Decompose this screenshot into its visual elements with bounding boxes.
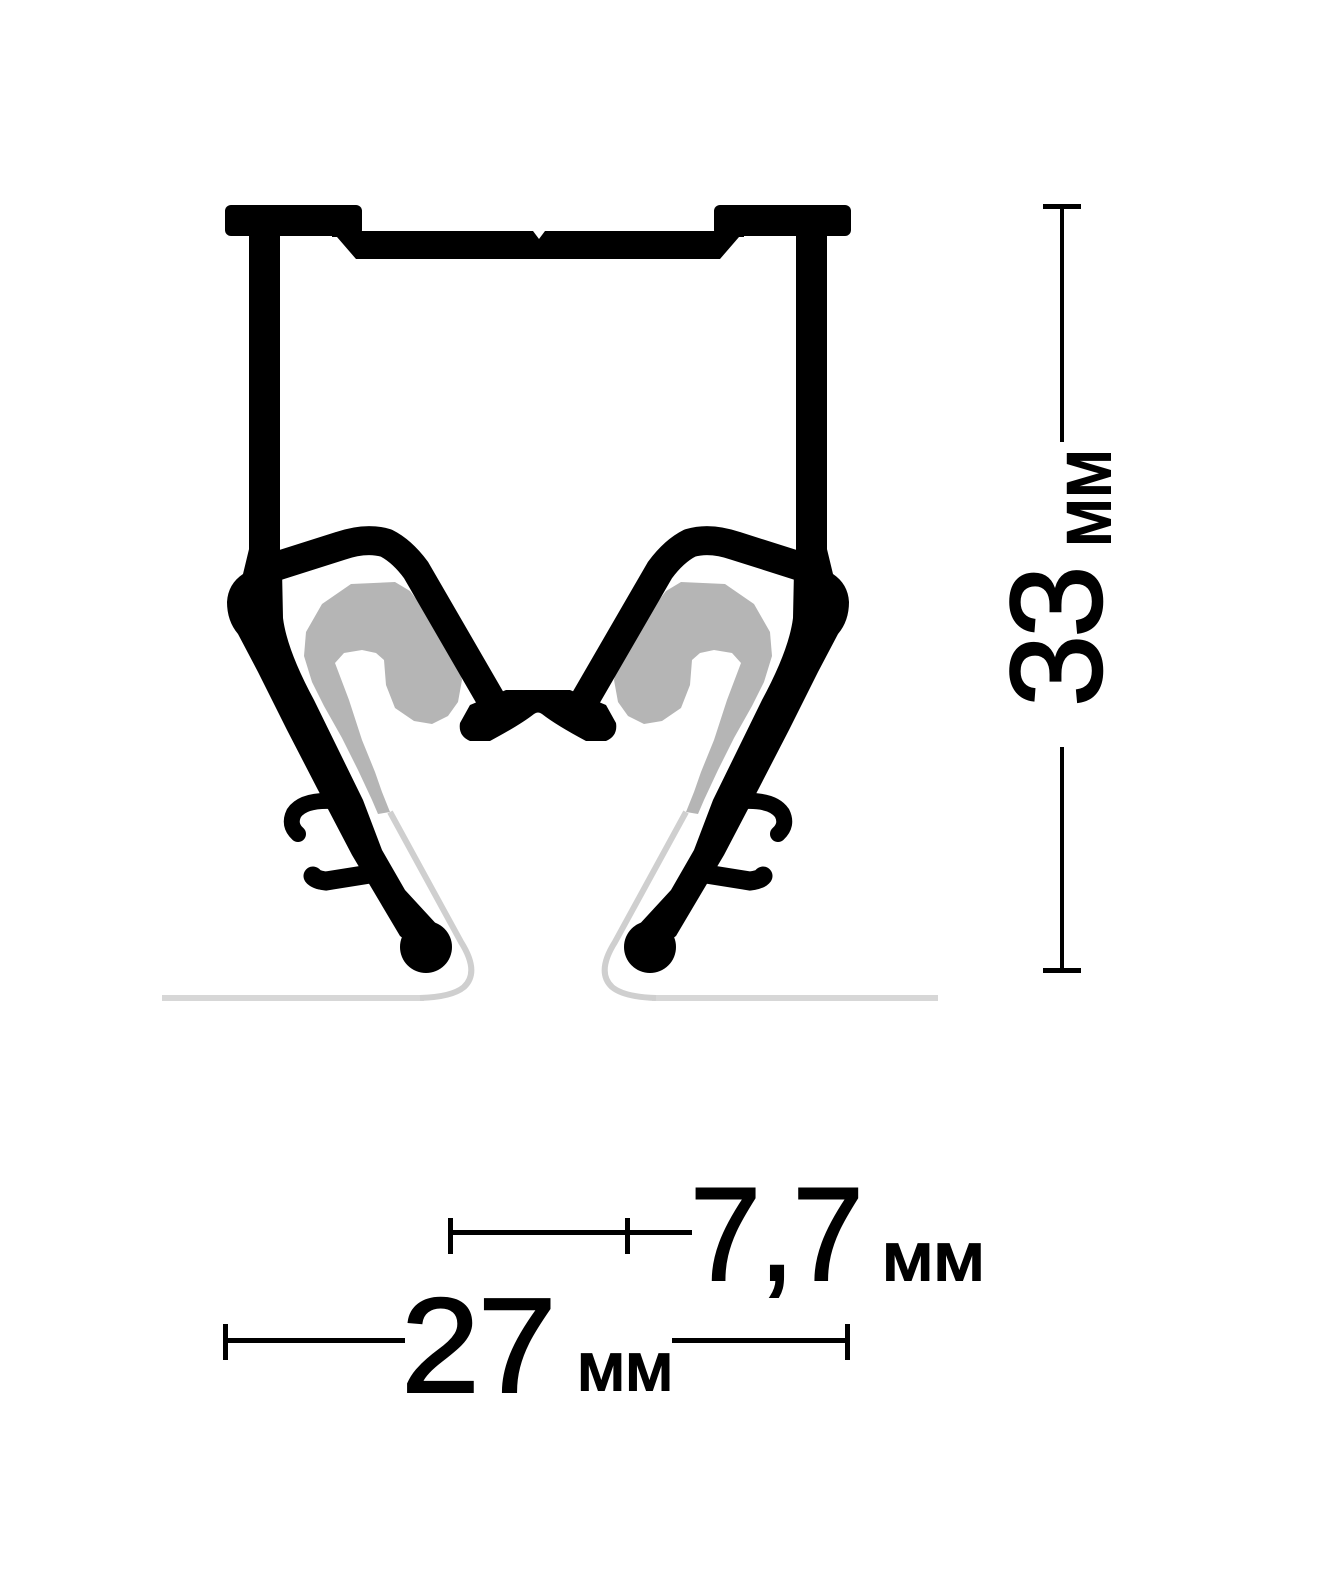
svg-text:мм: мм	[1038, 449, 1128, 547]
svg-text:мм: мм	[577, 1329, 673, 1405]
svg-text:33: 33	[983, 568, 1129, 707]
svg-text:7,7: 7,7	[690, 1160, 862, 1309]
svg-text:мм: мм	[882, 1219, 985, 1295]
svg-text:27: 27	[401, 1271, 554, 1421]
